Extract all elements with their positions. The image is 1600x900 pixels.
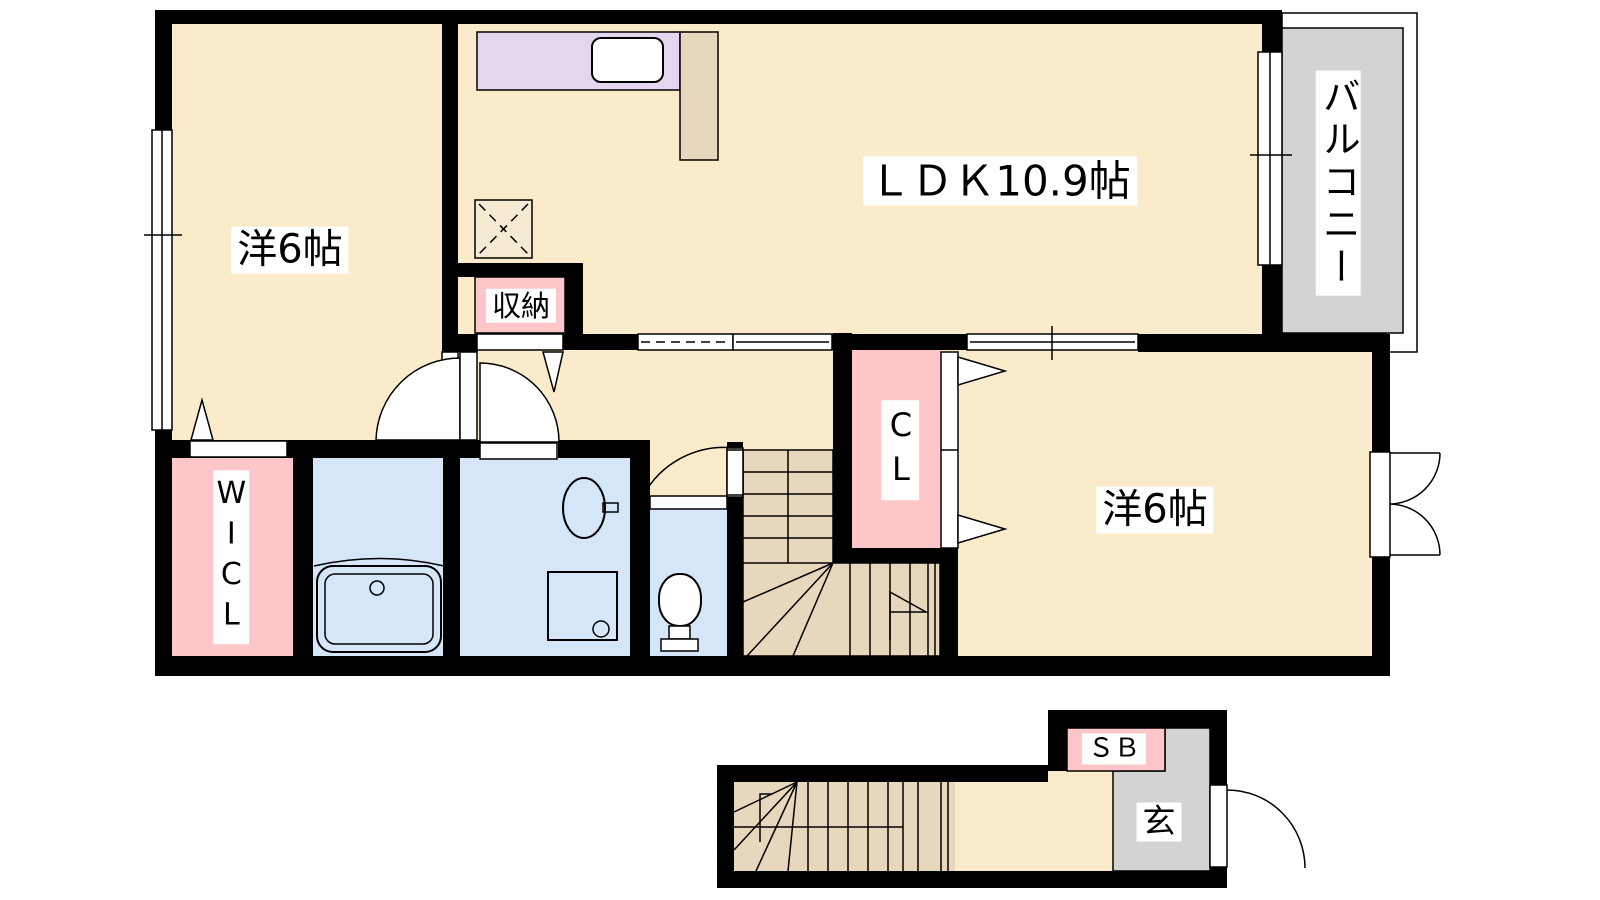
kitchen-counter-column: [680, 32, 718, 160]
stair-newel: [727, 450, 743, 495]
room-label-storage: 収納: [486, 289, 556, 323]
entry-hall-floor: [955, 771, 1113, 871]
entrance-top-wall: [717, 765, 1048, 782]
sliding-door-hall: [638, 334, 832, 350]
room-label-balcony: バルコニー: [1316, 71, 1361, 296]
room-label-closet: CL: [881, 400, 919, 500]
toilet: [659, 574, 701, 651]
bathroom-floor: [313, 458, 443, 656]
room-label-western-right: 洋6帖: [1096, 487, 1213, 534]
upper-unit: [144, 10, 1440, 676]
room-label-shoe-box: ＳＢ: [1082, 733, 1146, 764]
entrance-door: [1210, 785, 1305, 868]
room-label-entrance: 玄: [1137, 803, 1182, 842]
washroom-floor: [460, 458, 630, 656]
room-label-ldk: ＬＤＫ10.9帖: [863, 156, 1137, 205]
double-door-right: [1370, 452, 1440, 557]
entrance-unit: [717, 710, 1305, 888]
room-label-wicl: WICL: [213, 470, 249, 644]
room-label-western-left: 洋6帖: [231, 227, 348, 274]
kitchen-sink-icon: [592, 38, 663, 82]
refrigerator-space: [475, 200, 532, 258]
floor-plan: 洋6帖 ＬＤＫ10.9帖 洋6帖 バルコニー 収納 WICL CL ＳＢ 玄: [0, 0, 1600, 900]
